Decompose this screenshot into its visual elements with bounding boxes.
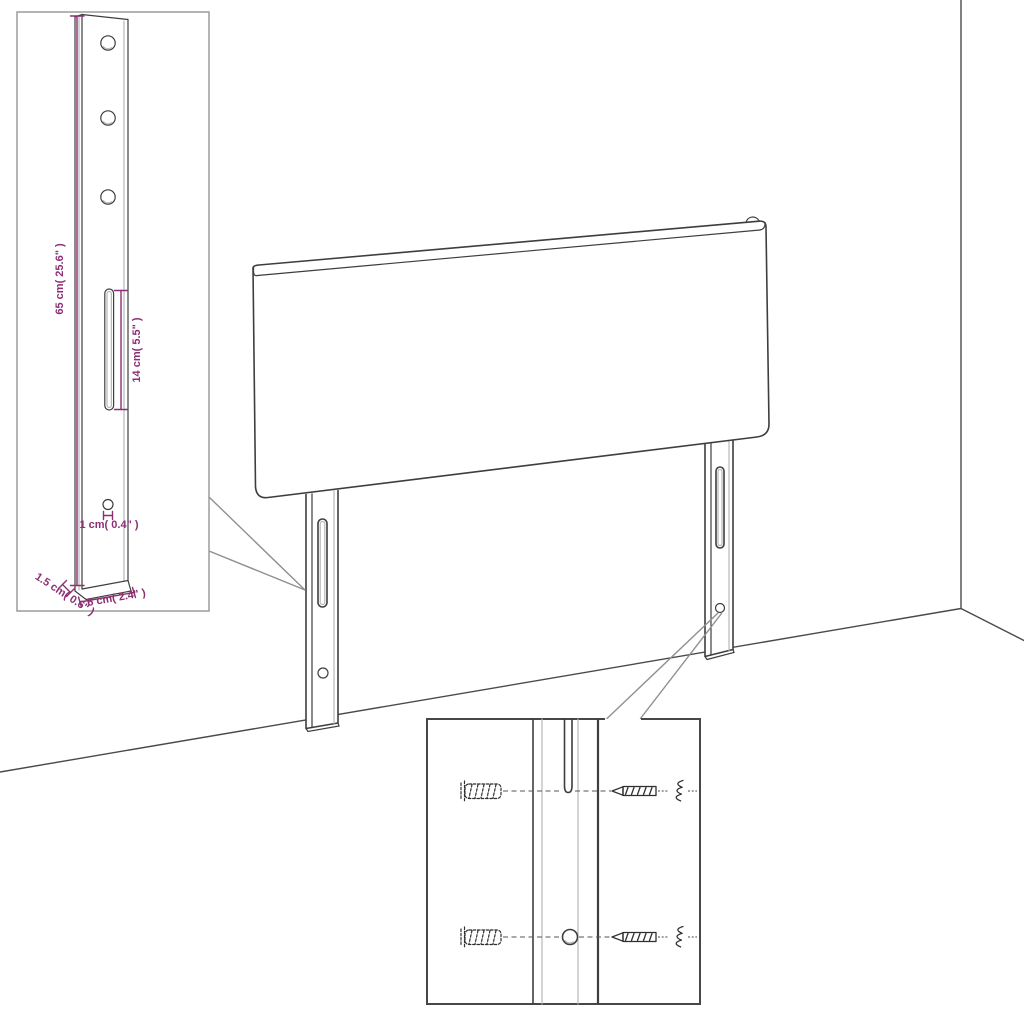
hardware-detail-inset	[427, 719, 700, 1004]
leg-dimension-inset: 65 cm( 25.6" ) 14 cm( 5.5" ) 1 cm( 0.4" …	[17, 12, 209, 618]
dimension-label-slot: 14 cm( 5.5" )	[131, 317, 143, 382]
callout-line-upper	[209, 497, 305, 590]
diagram-canvas: 65 cm( 25.6" ) 14 cm( 5.5" ) 1 cm( 0.4" …	[0, 0, 1024, 1024]
headboard-assembly-diagram: 65 cm( 25.6" ) 14 cm( 5.5" ) 1 cm( 0.4" …	[0, 0, 1024, 1024]
left-leg-hole	[318, 668, 328, 678]
headboard-panel	[253, 217, 769, 498]
left-leg-slot	[318, 519, 327, 607]
right-leg-hole	[716, 604, 725, 613]
inset-leg-slot	[105, 289, 114, 410]
hardware-callout-right	[641, 614, 722, 719]
strip-hole	[563, 930, 578, 945]
inset-callout-lines	[209, 497, 305, 590]
floor-line-right	[961, 609, 1024, 641]
hardware-inset-fill	[427, 719, 700, 1004]
left-leg	[306, 491, 339, 732]
right-leg-slot	[716, 467, 724, 548]
dimension-label-height: 65 cm( 25.6" )	[54, 243, 66, 315]
right-leg	[705, 441, 734, 660]
panel-face	[253, 221, 769, 498]
callout-line-lower	[209, 551, 305, 590]
dimension-label-hole: 1 cm( 0.4" )	[79, 519, 138, 531]
